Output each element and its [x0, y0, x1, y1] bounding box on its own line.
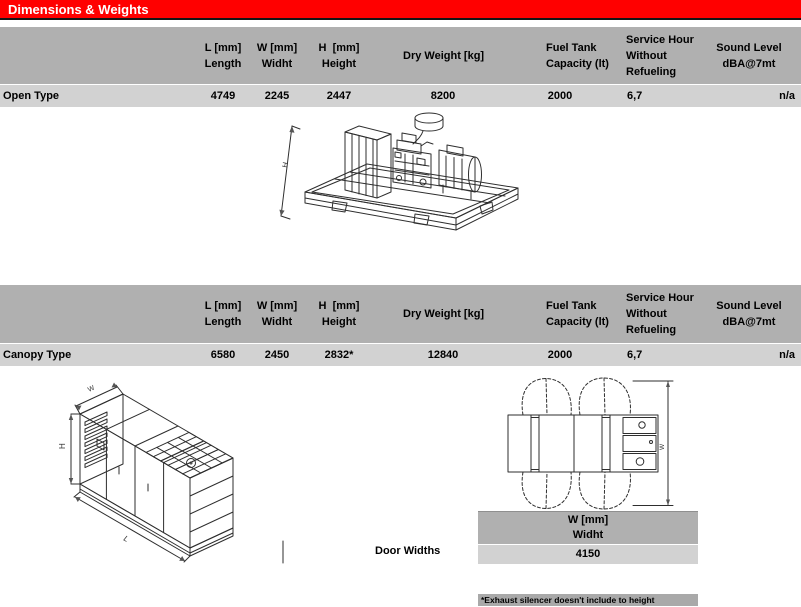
- open-drawing-height-label: H: [280, 161, 290, 168]
- col-fuel-tank-header: Fuel Tank Capacity (lt): [546, 285, 638, 343]
- col-fuel-tank-header: Fuel Tank Capacity (lt): [546, 27, 638, 84]
- col-dry-weight-header: Dry Weight [kg]: [403, 285, 499, 343]
- col-width-header: W [mm] Widht: [246, 27, 308, 84]
- door-widths-table: W [mm] Widht 4150: [478, 511, 698, 564]
- col-service-hour-header: Service Hour Without Refueling: [626, 285, 708, 343]
- door-widths-column-header: W [mm] Widht: [478, 511, 698, 544]
- door-widths-label: Door Widths: [375, 545, 440, 557]
- canopy-type-width: 2450: [246, 344, 308, 366]
- canopy-type-height: 2832*: [303, 344, 375, 366]
- dimensions-weights-datasheet: { "title": "Dimensions & Weights", "colu…: [0, 0, 801, 607]
- canopy-type-service-hour: 6,7: [627, 344, 687, 366]
- exhaust-silencer-footnote: *Exhaust silencer doesn't include to hei…: [478, 594, 698, 606]
- open-type-service-hour: 6,7: [627, 85, 687, 107]
- canopy-type-table-header: L [mm] Length W [mm] Widht H [mm] Height…: [0, 285, 801, 343]
- open-type-table-header: L [mm] Length W [mm] Widht H [mm] Height…: [0, 27, 801, 84]
- open-type-fuel-tank: 2000: [532, 85, 588, 107]
- col-height-header: H [mm] Height: [303, 27, 375, 84]
- canopy-drawing-width-label: W: [87, 385, 96, 394]
- canopy-type-row: Canopy Type 6580 2450 2832* 12840 2000 6…: [0, 344, 801, 366]
- col-height-header: H [mm] Height: [303, 285, 375, 343]
- col-width-header: W [mm] Widht: [246, 285, 308, 343]
- open-type-dry-weight: 8200: [394, 85, 492, 107]
- open-type-row: Open Type 4749 2245 2447 8200 2000 6,7 n…: [0, 85, 801, 107]
- door-swing-top-view: W: [483, 374, 688, 514]
- canopy-type-sound-level: n/a: [725, 344, 795, 366]
- canopy-type-drawing: H W L: [45, 375, 330, 575]
- open-type-width: 2245: [246, 85, 308, 107]
- canopy-type-fuel-tank: 2000: [532, 344, 588, 366]
- col-sound-level-header: Sound Level dBA@7mt: [710, 27, 788, 84]
- col-service-hour-header: Service Hour Without Refueling: [626, 27, 708, 84]
- open-type-sound-level: n/a: [725, 85, 795, 107]
- door-swing-width-label: W: [659, 443, 666, 450]
- page-title: Dimensions & Weights: [0, 0, 801, 20]
- canopy-drawing-length-label: L: [122, 534, 130, 544]
- door-widths-value: 4150: [478, 545, 698, 564]
- col-dry-weight-header: Dry Weight [kg]: [403, 27, 499, 84]
- canopy-drawing-height-label: H: [58, 443, 67, 449]
- open-type-row-label: Open Type: [3, 85, 59, 107]
- canopy-type-row-label: Canopy Type: [3, 344, 71, 366]
- open-type-drawing: H: [275, 106, 525, 238]
- col-sound-level-header: Sound Level dBA@7mt: [710, 285, 788, 343]
- canopy-type-dry-weight: 12840: [394, 344, 492, 366]
- open-type-height: 2447: [303, 85, 375, 107]
